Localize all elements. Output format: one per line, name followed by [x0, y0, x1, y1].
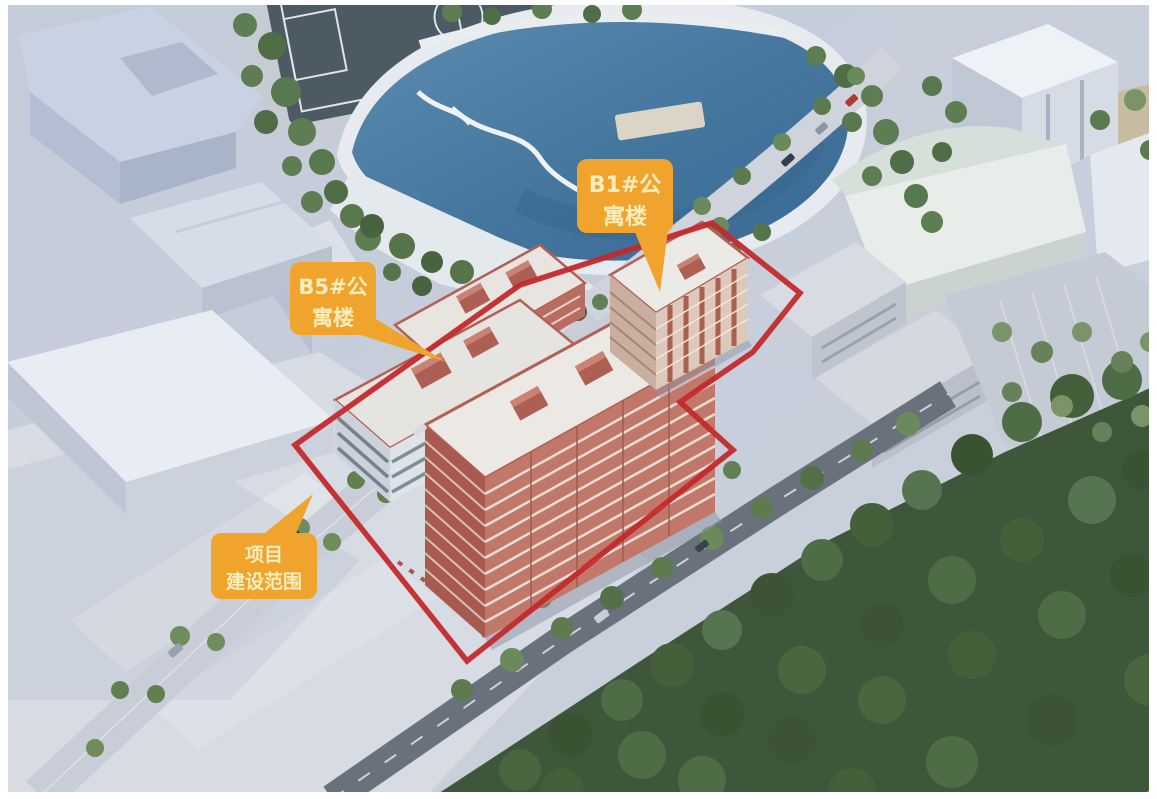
callout-b5-text-line2: 寓楼: [312, 306, 354, 330]
aerial-rendering: B5#公 寓楼 B1#公 寓楼 项目 建设范围: [0, 0, 1157, 799]
callout-b1-text-line1: B1#公: [589, 173, 662, 198]
callout-scope-text-line1: 项目: [245, 544, 283, 566]
callout-scope-text-line2: 建设范围: [226, 570, 302, 593]
callout-b1-text-line2: 寓楼: [603, 204, 647, 230]
callout-b5-text-line1: B5#公: [298, 275, 367, 299]
rendering-scene: B5#公 寓楼 B1#公 寓楼 项目 建设范围: [0, 0, 1157, 799]
